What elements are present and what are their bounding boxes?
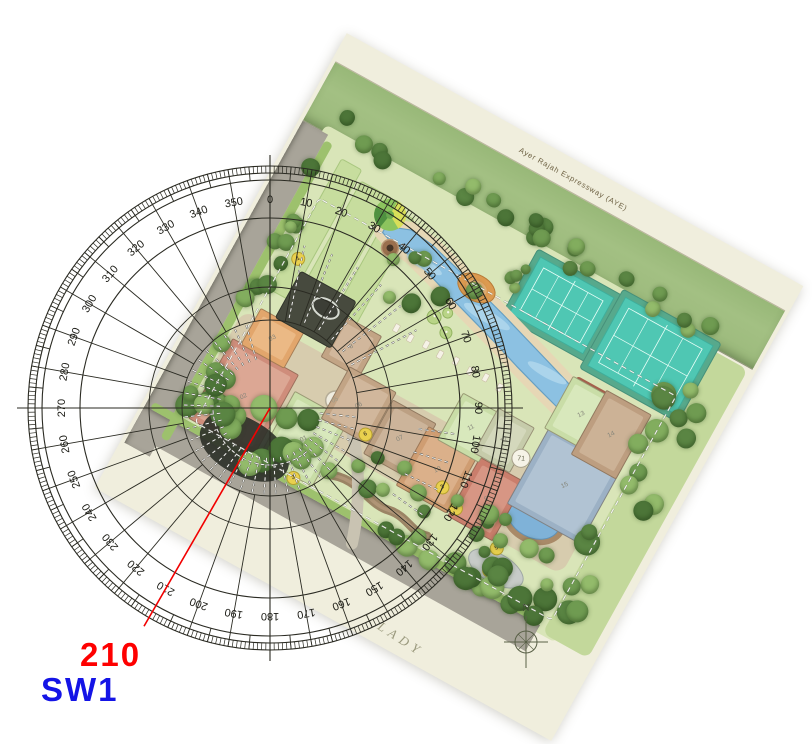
degree-label-330: 330 bbox=[155, 218, 177, 238]
degree-label-190: 190 bbox=[224, 605, 244, 620]
facing-direction-value: SW1 bbox=[41, 673, 119, 706]
degree-label-230: 230 bbox=[100, 531, 121, 553]
north-label: N bbox=[498, 604, 554, 614]
degree-label-240: 240 bbox=[80, 501, 100, 523]
degree-label-210: 210 bbox=[155, 578, 177, 598]
degree-label-180: 180 bbox=[261, 610, 279, 622]
north-indicator: N bbox=[498, 604, 554, 675]
degree-label-350: 350 bbox=[224, 196, 244, 211]
degree-label-200: 200 bbox=[188, 595, 209, 613]
degree-label-270: 270 bbox=[56, 399, 68, 417]
boundary-overlay-svg bbox=[95, 33, 804, 741]
site-plan-paper: Ayer Rajah Expressway (AYE) Science Park… bbox=[95, 33, 804, 741]
screenshot-stage: Ayer Rajah Expressway (AYE) Science Park… bbox=[0, 0, 812, 744]
degree-label-220: 220 bbox=[125, 557, 147, 578]
degree-label-290: 290 bbox=[66, 326, 84, 347]
degree-label-250: 250 bbox=[66, 469, 84, 490]
degree-label-300: 300 bbox=[80, 293, 100, 315]
degree-label-340: 340 bbox=[188, 204, 209, 222]
degree-label-280: 280 bbox=[58, 362, 73, 382]
bearing-value: 210 bbox=[80, 638, 141, 671]
north-compass-icon bbox=[498, 614, 554, 670]
site-boundary-dashed bbox=[195, 198, 676, 620]
degree-label-260: 260 bbox=[58, 434, 73, 454]
degree-label-310: 310 bbox=[100, 263, 121, 285]
site-boundary-dashed bbox=[195, 198, 676, 620]
degree-label-320: 320 bbox=[125, 238, 147, 259]
